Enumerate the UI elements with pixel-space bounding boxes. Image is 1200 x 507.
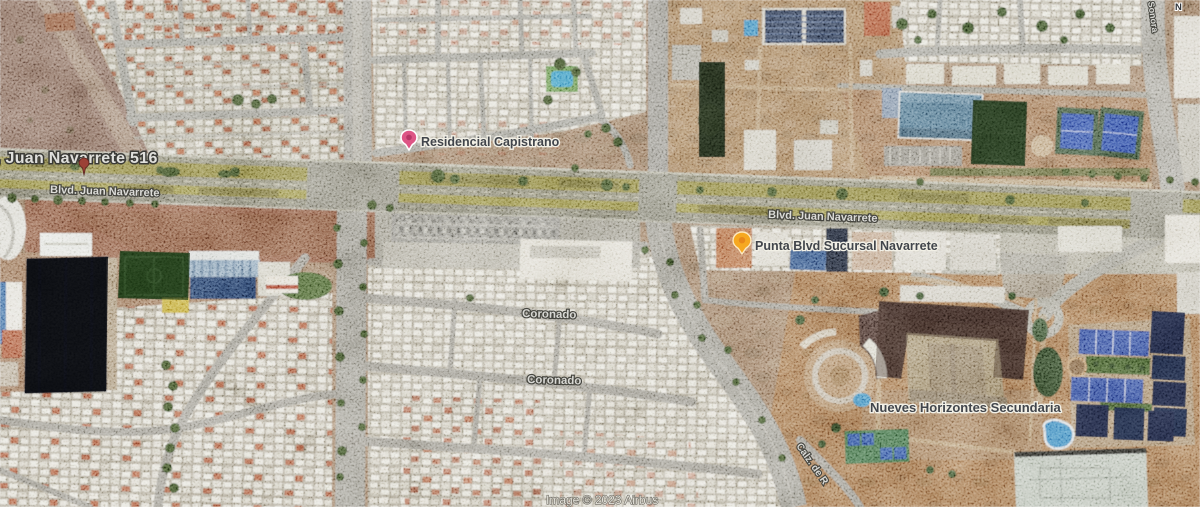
svg-text:Nueves Horizontes Secundaria: Nueves Horizontes Secundaria (870, 400, 1061, 415)
svg-text:Punta Blvd Sucursal Navarrete: Punta Blvd Sucursal Navarrete (755, 239, 938, 253)
svg-text:Residencial Capistrano: Residencial Capistrano (421, 135, 560, 149)
svg-text:Coronado: Coronado (522, 308, 577, 321)
svg-text:Coronado: Coronado (527, 374, 582, 387)
svg-text:N: N (1175, 2, 1182, 13)
svg-text:Image © 2023 Airbus: Image © 2023 Airbus (546, 493, 658, 507)
svg-text:. Juan Navarrete 516: . Juan Navarrete 516 (0, 150, 158, 167)
